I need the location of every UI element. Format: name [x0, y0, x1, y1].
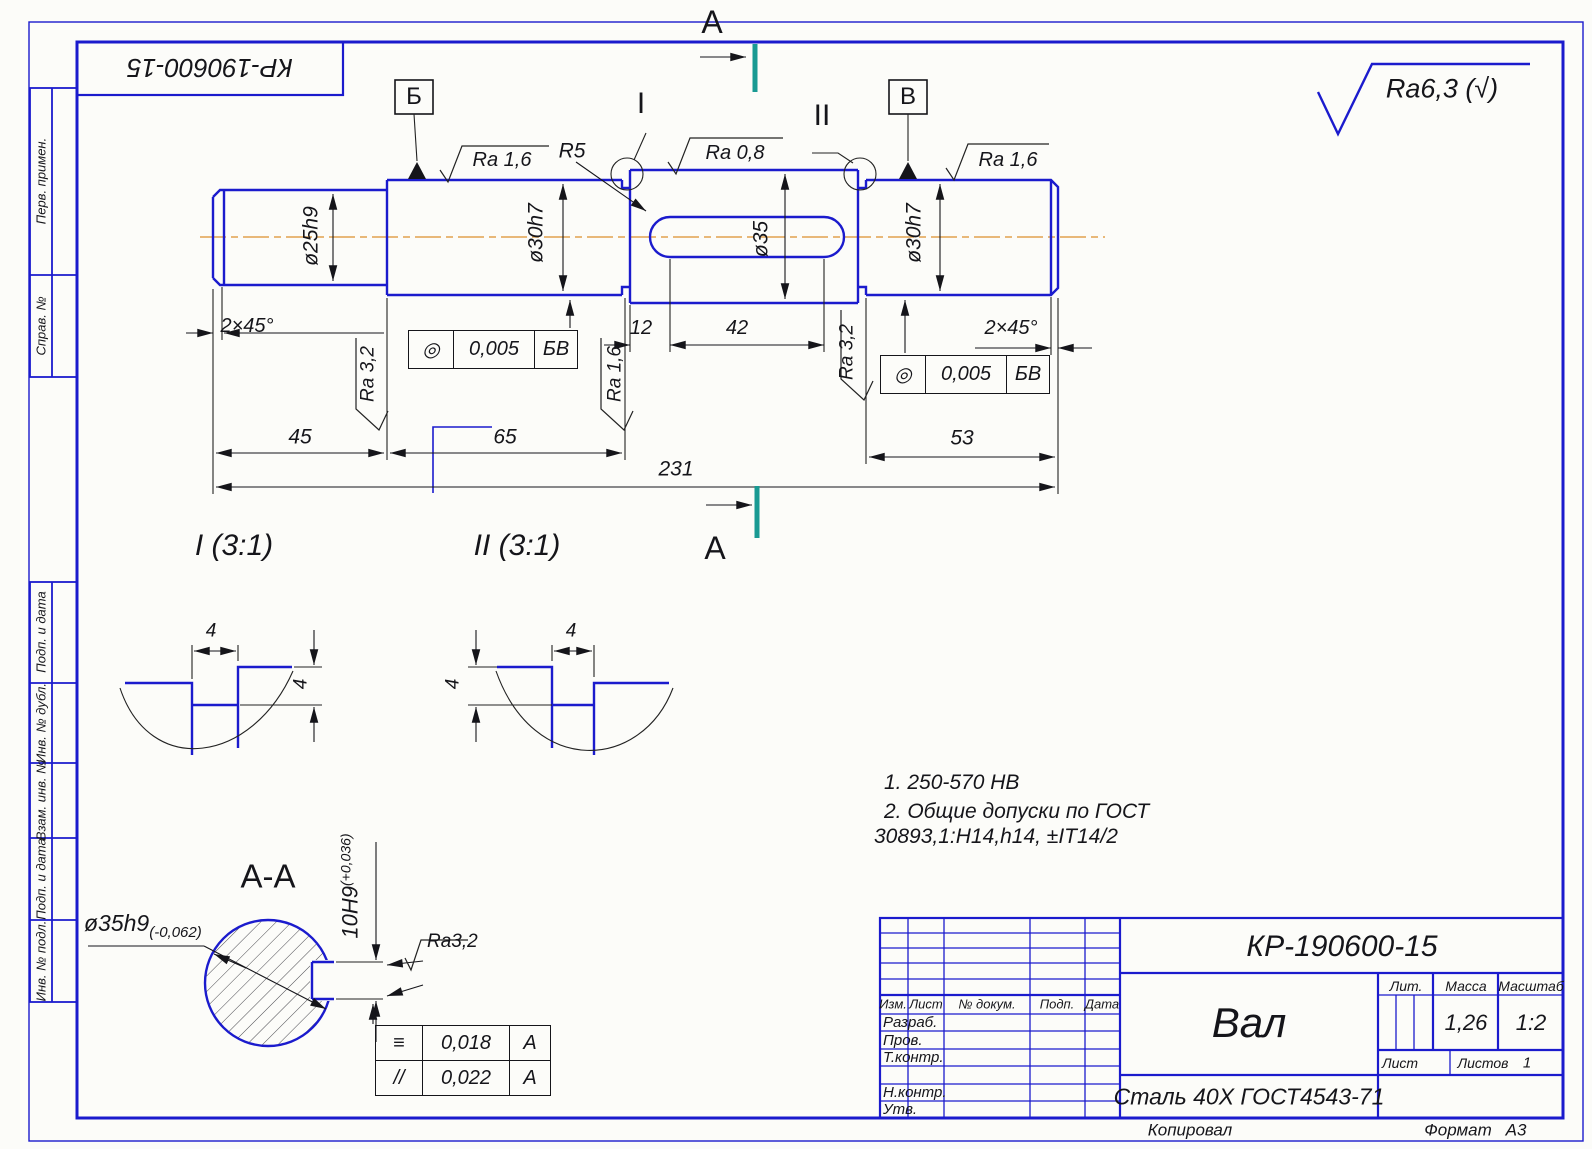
dim-diameter-25: ø25h9	[301, 206, 322, 266]
tb-sheets-value: 1	[1523, 1056, 1531, 1071]
tolerance-right-value: 0,005	[926, 355, 1007, 394]
roughness-left: Ra 1,6	[473, 150, 532, 170]
detail-views-outline	[125, 667, 669, 755]
tolerance-right-datum: БВ	[1007, 355, 1050, 394]
detail-1-title: I (3:1)	[195, 531, 273, 561]
note-line-2: 2. Общие допуски по ГОСТ	[884, 801, 1149, 822]
dim-keyway-length: 42	[726, 318, 748, 338]
section-plane-marks	[755, 44, 757, 538]
tb-material: Сталь 40Х ГОСТ4543-71	[1114, 1086, 1385, 1109]
tolerance-left-datum: БВ	[535, 330, 578, 369]
roughness-middle: Ra 0,8	[706, 143, 765, 163]
coaxiality-icon: ◎	[880, 355, 926, 394]
margin-label-sprav-no: Справ. №	[35, 296, 48, 355]
parallelism-icon: //	[375, 1061, 423, 1096]
tb-sheet-label: Лист	[1382, 1056, 1418, 1070]
chamfer-right-label: 2×45°	[984, 318, 1037, 338]
dim-length-overall: 231	[658, 459, 693, 480]
roughness-shoulder-right: Ra 3,2	[838, 324, 857, 380]
dim-diameter-30-right: ø30h7	[904, 203, 925, 263]
tb-col-podp: Подп.	[1040, 998, 1075, 1011]
dim-length-65: 65	[493, 427, 516, 448]
symmetry-value: 0,018	[423, 1025, 510, 1061]
roughness-shoulder-left: Ra 3,2	[359, 346, 378, 402]
footer-copied: Копировал	[1148, 1122, 1233, 1139]
dim-length-45: 45	[288, 427, 311, 448]
aa-diameter-label: ø35h9(-0,062)	[84, 912, 202, 940]
margin-label-inv-podl: Инв. № подл.	[35, 921, 48, 1002]
tb-row-razrab: Разраб.	[883, 1015, 937, 1030]
radius-label: R5	[559, 141, 586, 162]
detail-1-depth: 4	[292, 679, 311, 690]
general-roughness-label: Ra6,3 (√)	[1386, 76, 1498, 103]
detail-1-width: 4	[206, 622, 217, 641]
footer-format-label: Формат	[1424, 1122, 1492, 1139]
drawing-sheet: КР-190600-15 Ra6,3 (√) Б В I II Ra 1,6 R…	[0, 0, 1592, 1149]
chamfer-left-label: 2×45°	[220, 316, 273, 336]
aa-tolerance-symmetry-row: ≡ 0,018 А	[375, 1025, 551, 1061]
tb-part-name: Вал	[1212, 1002, 1287, 1044]
tb-sheets-label: Листов	[1458, 1056, 1509, 1070]
tb-mass-label: Масса	[1445, 979, 1486, 993]
tolerance-frame-left: ◎ 0,005 БВ	[408, 330, 578, 369]
note-line-3: 30893,1:H14,h14, ±IT14/2	[874, 826, 1118, 847]
margin-label-vzam-inv: Взам. инв. №	[35, 760, 48, 840]
margin-label-perv-primen: Перв. примен.	[35, 138, 48, 224]
detail-2-depth: 4	[444, 679, 463, 690]
aa-tolerance-table: ≡ 0,018 А // 0,022 А	[375, 1025, 551, 1096]
tolerance-frame-right: ◎ 0,005 БВ	[880, 355, 1050, 394]
detail-marker-2-label: II	[814, 101, 831, 131]
tb-col-list: Лист	[909, 998, 942, 1011]
dim-keyway-offset: 12	[630, 318, 652, 338]
note-line-1: 1. 250-570 НВ	[884, 772, 1019, 793]
tolerance-left-value: 0,005	[454, 330, 535, 369]
symmetry-icon: ≡	[375, 1025, 423, 1061]
detail-2-width: 4	[566, 622, 577, 641]
top-left-stamp: КР-190600-15	[127, 55, 293, 81]
aa-diameter-value: ø35h9	[84, 910, 149, 936]
aa-diameter-tolerance: (-0,062)	[149, 924, 202, 941]
section-letter-bottom: А	[704, 532, 725, 564]
aa-roughness-label: Ra3,2	[427, 932, 478, 951]
aa-keyway-label: 10H9(+0,036)	[339, 833, 362, 938]
margin-label-inv-dubl: Инв. № дубл.	[35, 683, 48, 763]
tb-col-izm: Изм.	[879, 998, 907, 1011]
tb-row-tkontr: Т.контр.	[883, 1050, 944, 1065]
symmetry-datum: А	[510, 1025, 551, 1061]
section-aa-title: А-А	[240, 860, 295, 893]
aa-tolerance-parallel-row: // 0,022 А	[375, 1061, 551, 1096]
footer-format-value: А3	[1506, 1122, 1527, 1139]
section-letter-top: А	[701, 6, 722, 38]
parallelism-datum: А	[510, 1061, 551, 1096]
tb-lit-label: Лит.	[1390, 979, 1423, 993]
drawing-canvas	[0, 0, 1592, 1149]
roughness-right: Ra 1,6	[979, 150, 1038, 170]
aa-keyway-value: 10H9	[338, 886, 363, 939]
margin-label-podp-data-2: Подп. и дата	[35, 838, 48, 919]
tb-scale-value: 1:2	[1516, 1012, 1547, 1034]
tb-row-nkontr: Н.контр.	[883, 1085, 947, 1100]
tb-mass-value: 1,26	[1445, 1012, 1488, 1034]
roughness-shoulder-middle: Ra 1,6	[606, 346, 625, 402]
tb-doc-number: КР-190600-15	[1246, 932, 1437, 962]
margin-label-podp-data-1: Подп. и дата	[35, 591, 48, 672]
tb-row-utv: Утв.	[883, 1102, 917, 1117]
tb-scale-label: Масштаб	[1498, 979, 1563, 993]
aa-keyway-tolerance: (+0,036)	[338, 833, 354, 886]
detail-2-title: II (3:1)	[474, 531, 561, 561]
dim-length-53: 53	[950, 428, 973, 449]
parallelism-value: 0,022	[423, 1061, 510, 1096]
tb-col-doc: № докум.	[958, 998, 1015, 1011]
dim-diameter-30-left: ø30h7	[526, 203, 547, 263]
datum-v-label: В	[900, 85, 916, 109]
tb-col-data: Дата	[1085, 998, 1119, 1011]
detail-break-arcs	[120, 671, 673, 750]
coaxiality-icon: ◎	[408, 330, 454, 369]
tb-row-prov: Пров.	[883, 1033, 923, 1048]
section-aa-geometry	[205, 920, 339, 1046]
datum-b-label: Б	[406, 85, 422, 109]
dim-diameter-35: ø35	[751, 221, 772, 257]
detail-marker-1-label: I	[637, 89, 645, 119]
